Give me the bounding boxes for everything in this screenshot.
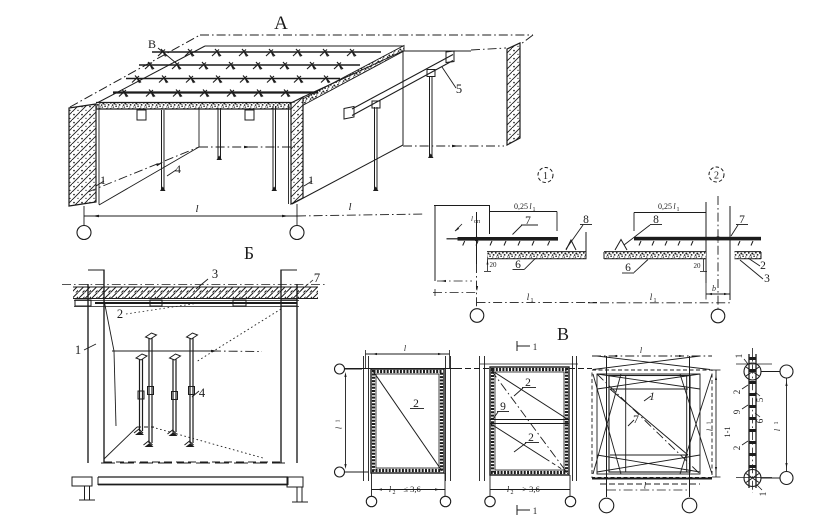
- svg-text:0,25: 0,25: [514, 202, 528, 211]
- svg-text:1: 1: [734, 354, 744, 359]
- svg-text:1: 1: [707, 422, 713, 425]
- svg-text:Б: Б: [244, 243, 254, 263]
- svg-text:2: 2: [117, 307, 123, 321]
- svg-text:1: 1: [308, 173, 314, 187]
- svg-text:7: 7: [314, 271, 320, 285]
- svg-text:l: l: [507, 484, 510, 494]
- svg-text:3: 3: [212, 267, 218, 281]
- svg-text:l: l: [335, 426, 344, 429]
- svg-text:l: l: [706, 428, 715, 431]
- svg-text:b: b: [712, 284, 716, 293]
- svg-text:l: l: [527, 292, 530, 302]
- svg-text:1: 1: [75, 343, 81, 357]
- svg-text:1: 1: [758, 492, 768, 497]
- svg-text:l: l: [644, 481, 647, 491]
- svg-text:l: l: [471, 215, 473, 223]
- svg-text:1: 1: [533, 506, 538, 516]
- svg-text:1: 1: [336, 420, 342, 423]
- svg-text:1: 1: [653, 297, 656, 304]
- svg-text:≤ 3,6: ≤ 3,6: [403, 484, 420, 494]
- svg-text:В: В: [148, 37, 156, 51]
- svg-text:l: l: [389, 484, 392, 494]
- svg-text:1: 1: [533, 342, 538, 352]
- svg-text:1: 1: [774, 422, 780, 425]
- svg-text:l: l: [348, 201, 351, 213]
- svg-text:4: 4: [199, 386, 206, 400]
- svg-text:оп: оп: [474, 219, 481, 225]
- svg-text:l: l: [773, 428, 782, 431]
- svg-text:1: 1: [533, 207, 536, 213]
- svg-text:А: А: [274, 13, 288, 34]
- svg-text:1: 1: [543, 171, 548, 182]
- svg-text:6: 6: [755, 418, 765, 423]
- svg-text:20: 20: [490, 261, 498, 269]
- svg-text:2: 2: [760, 260, 766, 272]
- svg-text:2: 2: [732, 390, 742, 395]
- svg-text:> 3,6: > 3,6: [522, 484, 540, 494]
- svg-text:l: l: [404, 344, 407, 353]
- svg-text:2: 2: [393, 490, 396, 496]
- svg-text:5: 5: [456, 82, 462, 96]
- svg-text:20: 20: [694, 262, 702, 270]
- svg-text:2: 2: [714, 171, 719, 182]
- svg-text:1: 1: [100, 173, 106, 187]
- svg-text:2: 2: [511, 490, 514, 496]
- svg-text:7: 7: [633, 414, 639, 426]
- svg-text:2: 2: [732, 446, 742, 451]
- svg-text:1: 1: [677, 207, 680, 213]
- svg-text:l: l: [640, 346, 643, 355]
- svg-text:4: 4: [175, 162, 181, 176]
- svg-text:1-1: 1-1: [722, 426, 732, 437]
- svg-text:l: l: [650, 292, 653, 302]
- svg-text:9: 9: [732, 409, 742, 414]
- svg-text:5: 5: [755, 397, 765, 402]
- svg-text:В: В: [557, 324, 569, 344]
- svg-text:6: 6: [625, 262, 631, 274]
- svg-text:3: 3: [764, 273, 770, 285]
- svg-text:l: l: [195, 203, 198, 215]
- svg-text:1: 1: [530, 297, 533, 304]
- svg-text:0,25: 0,25: [658, 202, 672, 211]
